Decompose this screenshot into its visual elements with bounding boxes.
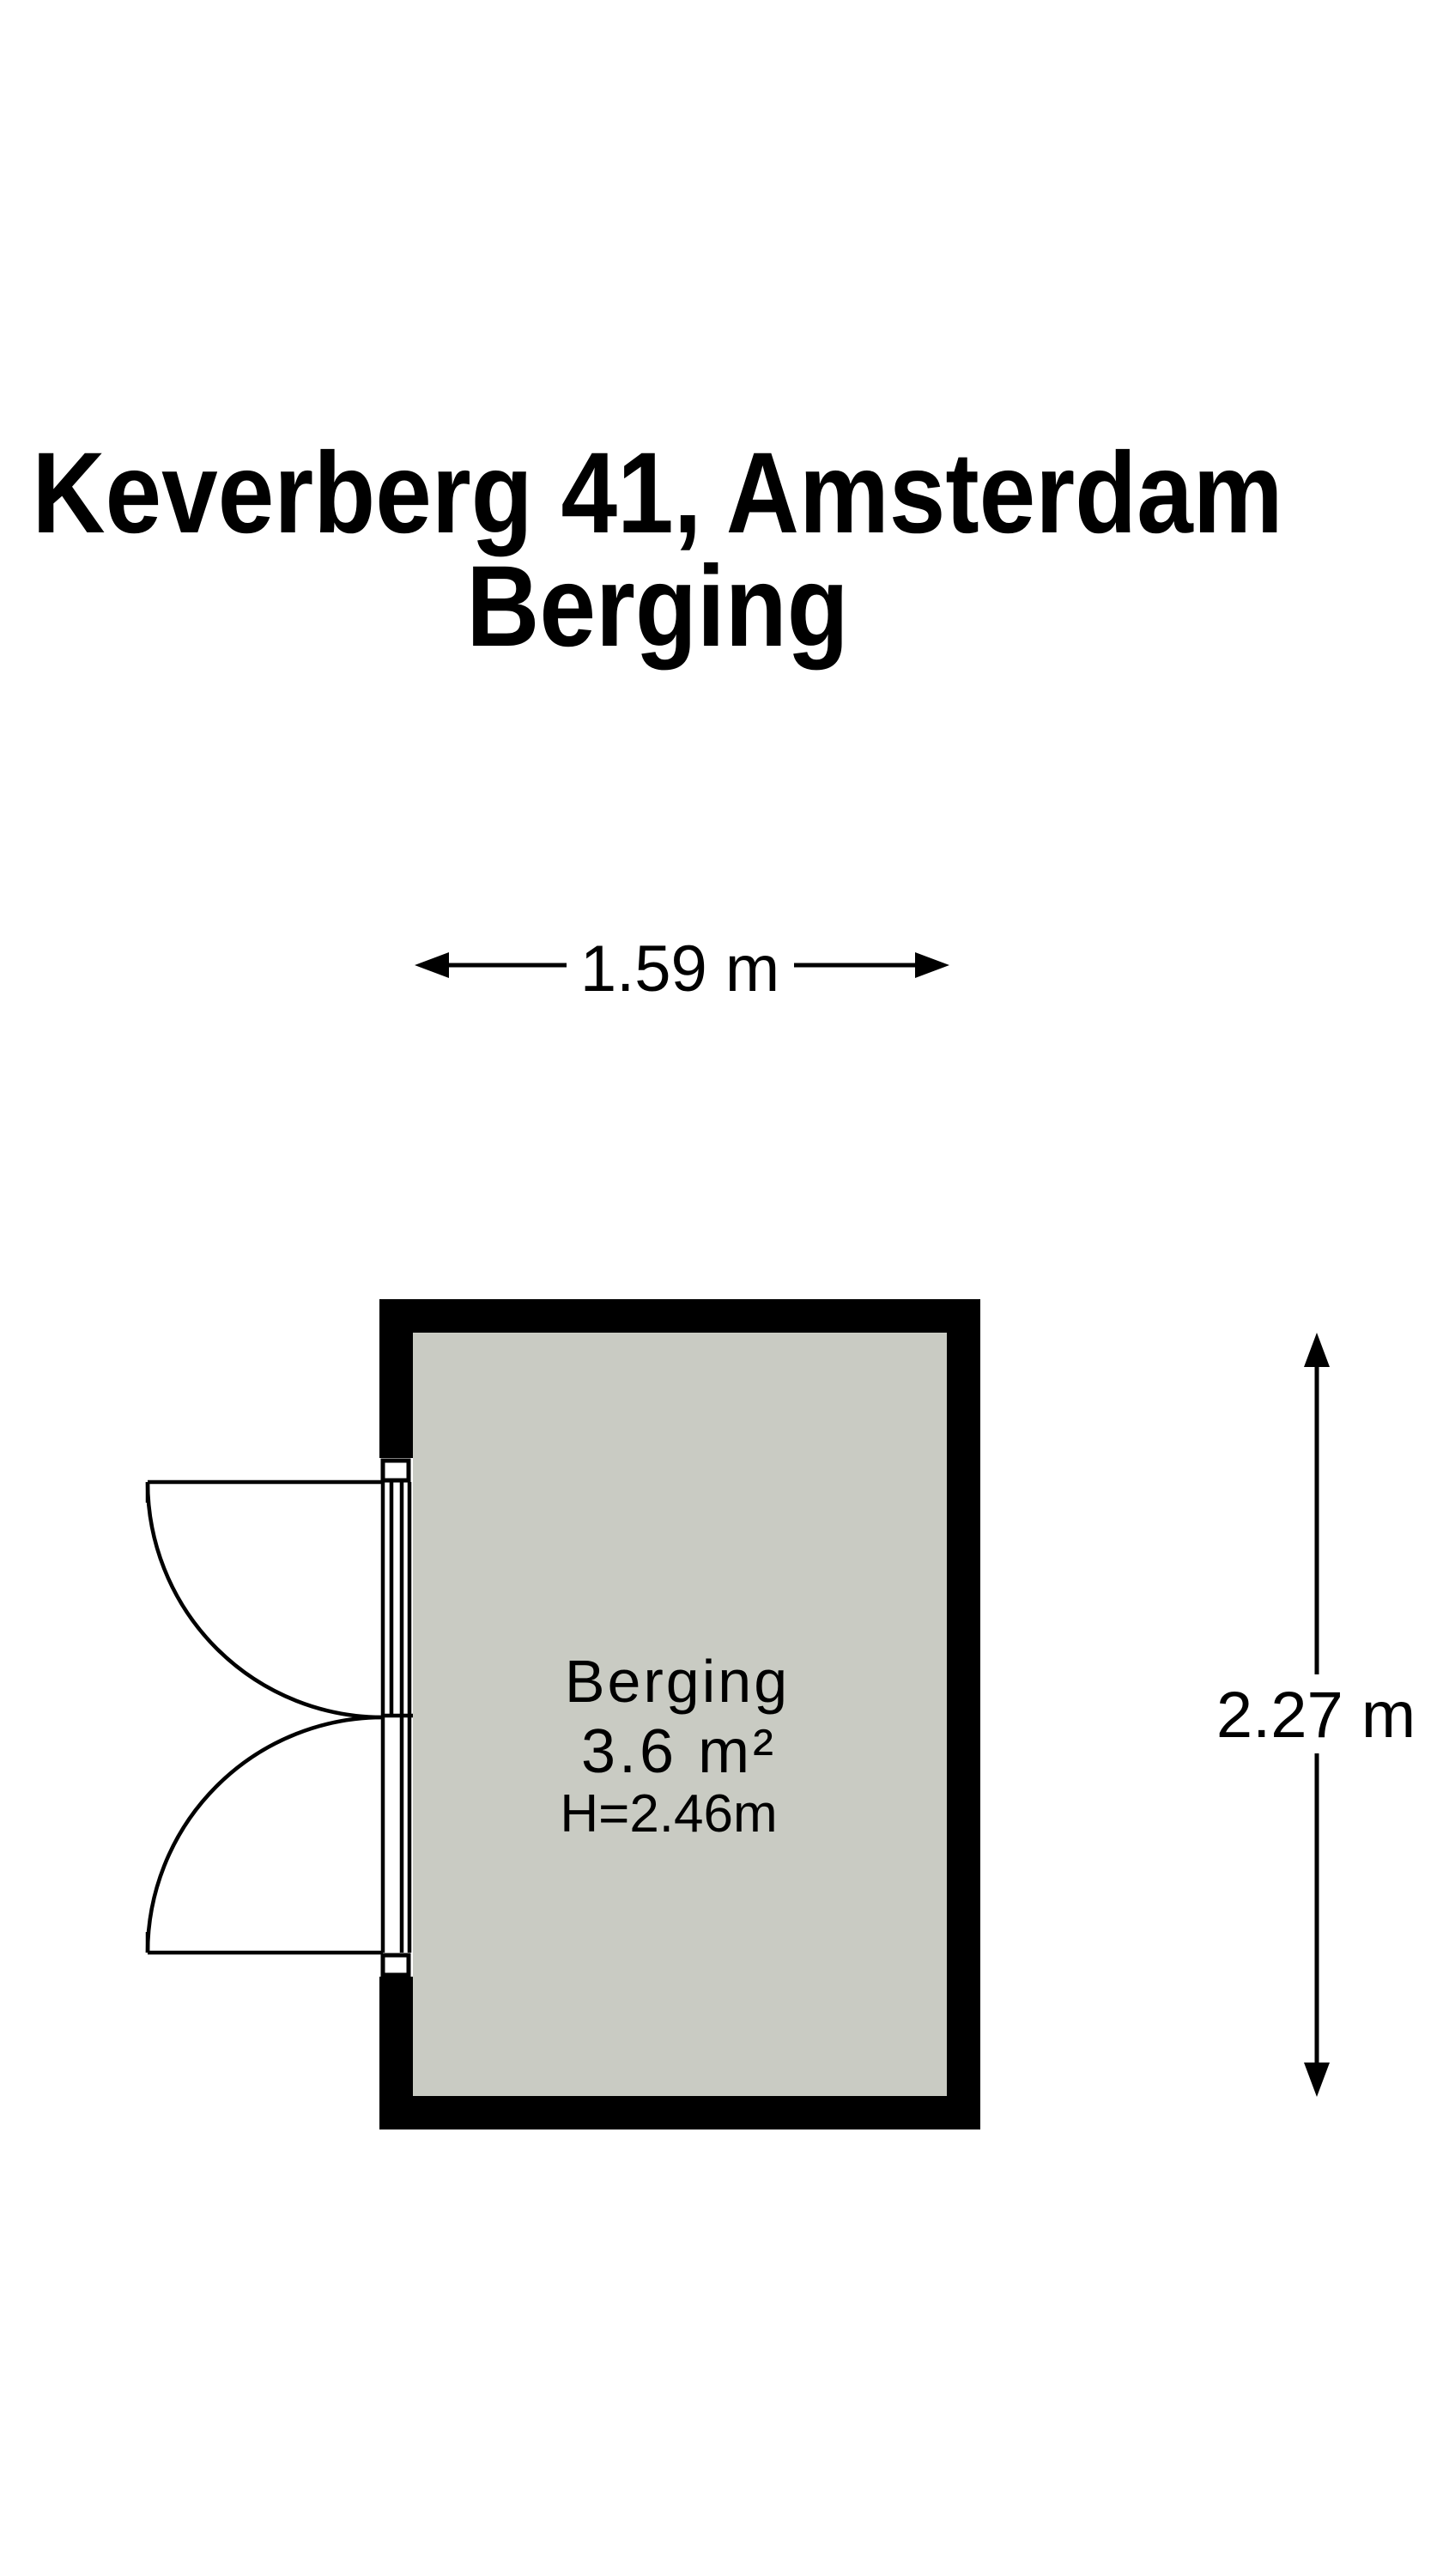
wall-right xyxy=(947,1299,980,2129)
wall-bottom xyxy=(379,2096,980,2129)
room-ceiling-height-label: H=2.46m xyxy=(560,1788,777,1841)
wall-top xyxy=(379,1299,980,1333)
wall-left-upper xyxy=(379,1299,413,1458)
room-area-label: 3.6 m² xyxy=(581,1721,777,1783)
door-jamb-top xyxy=(383,1461,409,1480)
height-arrow-bottom-icon xyxy=(1304,2063,1330,2097)
room-floor xyxy=(413,1333,948,2097)
door-swing-arc-bottom xyxy=(148,1717,383,1953)
floorplan-svg xyxy=(0,0,1449,2576)
door-jamb-bottom xyxy=(383,1955,409,1975)
width-arrow-right-icon xyxy=(915,952,949,978)
double-door xyxy=(148,1482,383,1953)
height-dimension-label: 2.27 m xyxy=(1216,1683,1416,1748)
door-swing-arc-top xyxy=(148,1482,383,1717)
floorplan-page: Keverberg 41, Amsterdam Berging xyxy=(0,0,1449,2576)
height-arrow-top-icon xyxy=(1304,1333,1330,1367)
door-frame xyxy=(381,1482,413,1953)
width-dimension-label: 1.59 m xyxy=(580,937,779,1002)
wall-left-lower xyxy=(379,1977,413,2129)
room-name-label: Berging xyxy=(565,1651,790,1711)
width-arrow-left-icon xyxy=(415,952,449,978)
